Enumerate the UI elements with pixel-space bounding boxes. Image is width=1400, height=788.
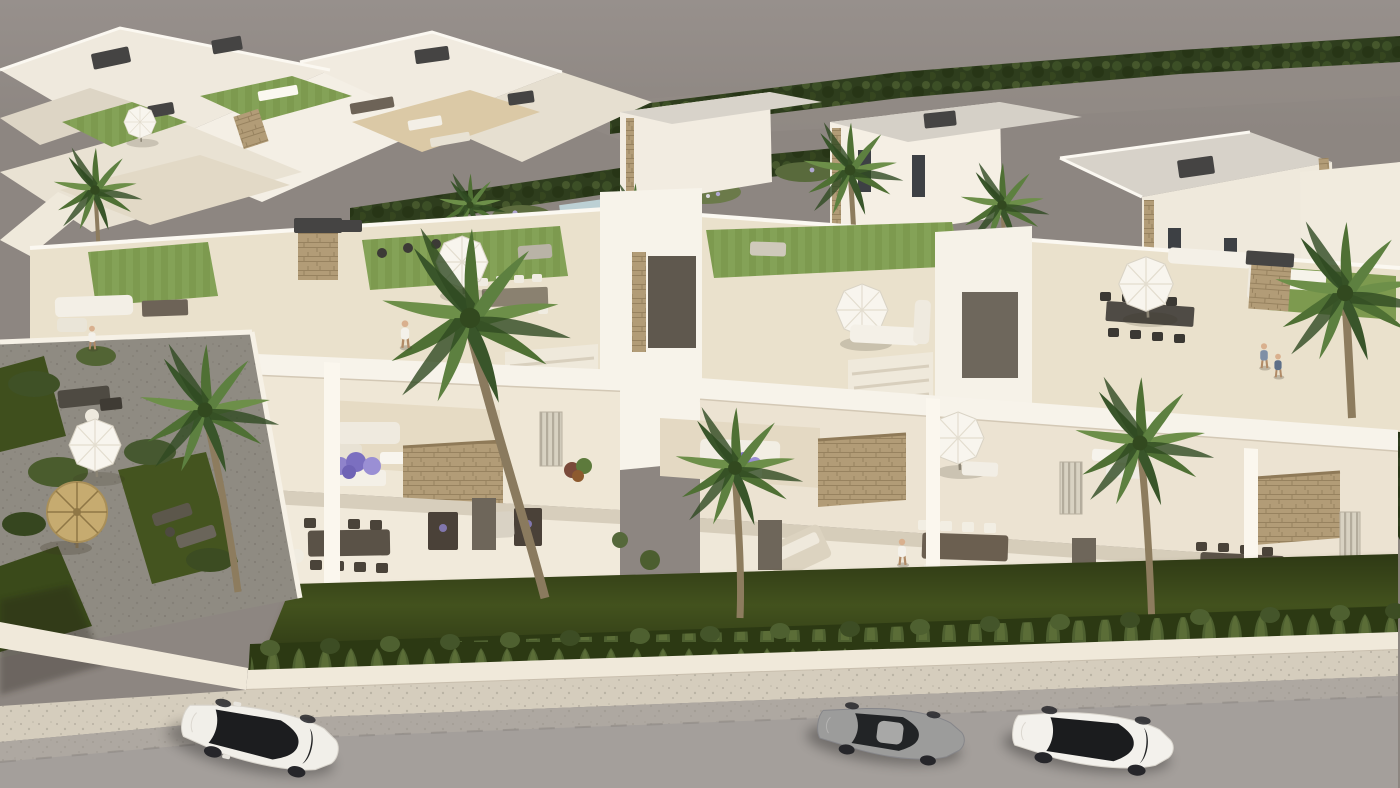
roof-lounger-c bbox=[750, 241, 786, 256]
roof-chimney-a bbox=[294, 218, 342, 280]
render-canvas bbox=[0, 0, 1400, 788]
